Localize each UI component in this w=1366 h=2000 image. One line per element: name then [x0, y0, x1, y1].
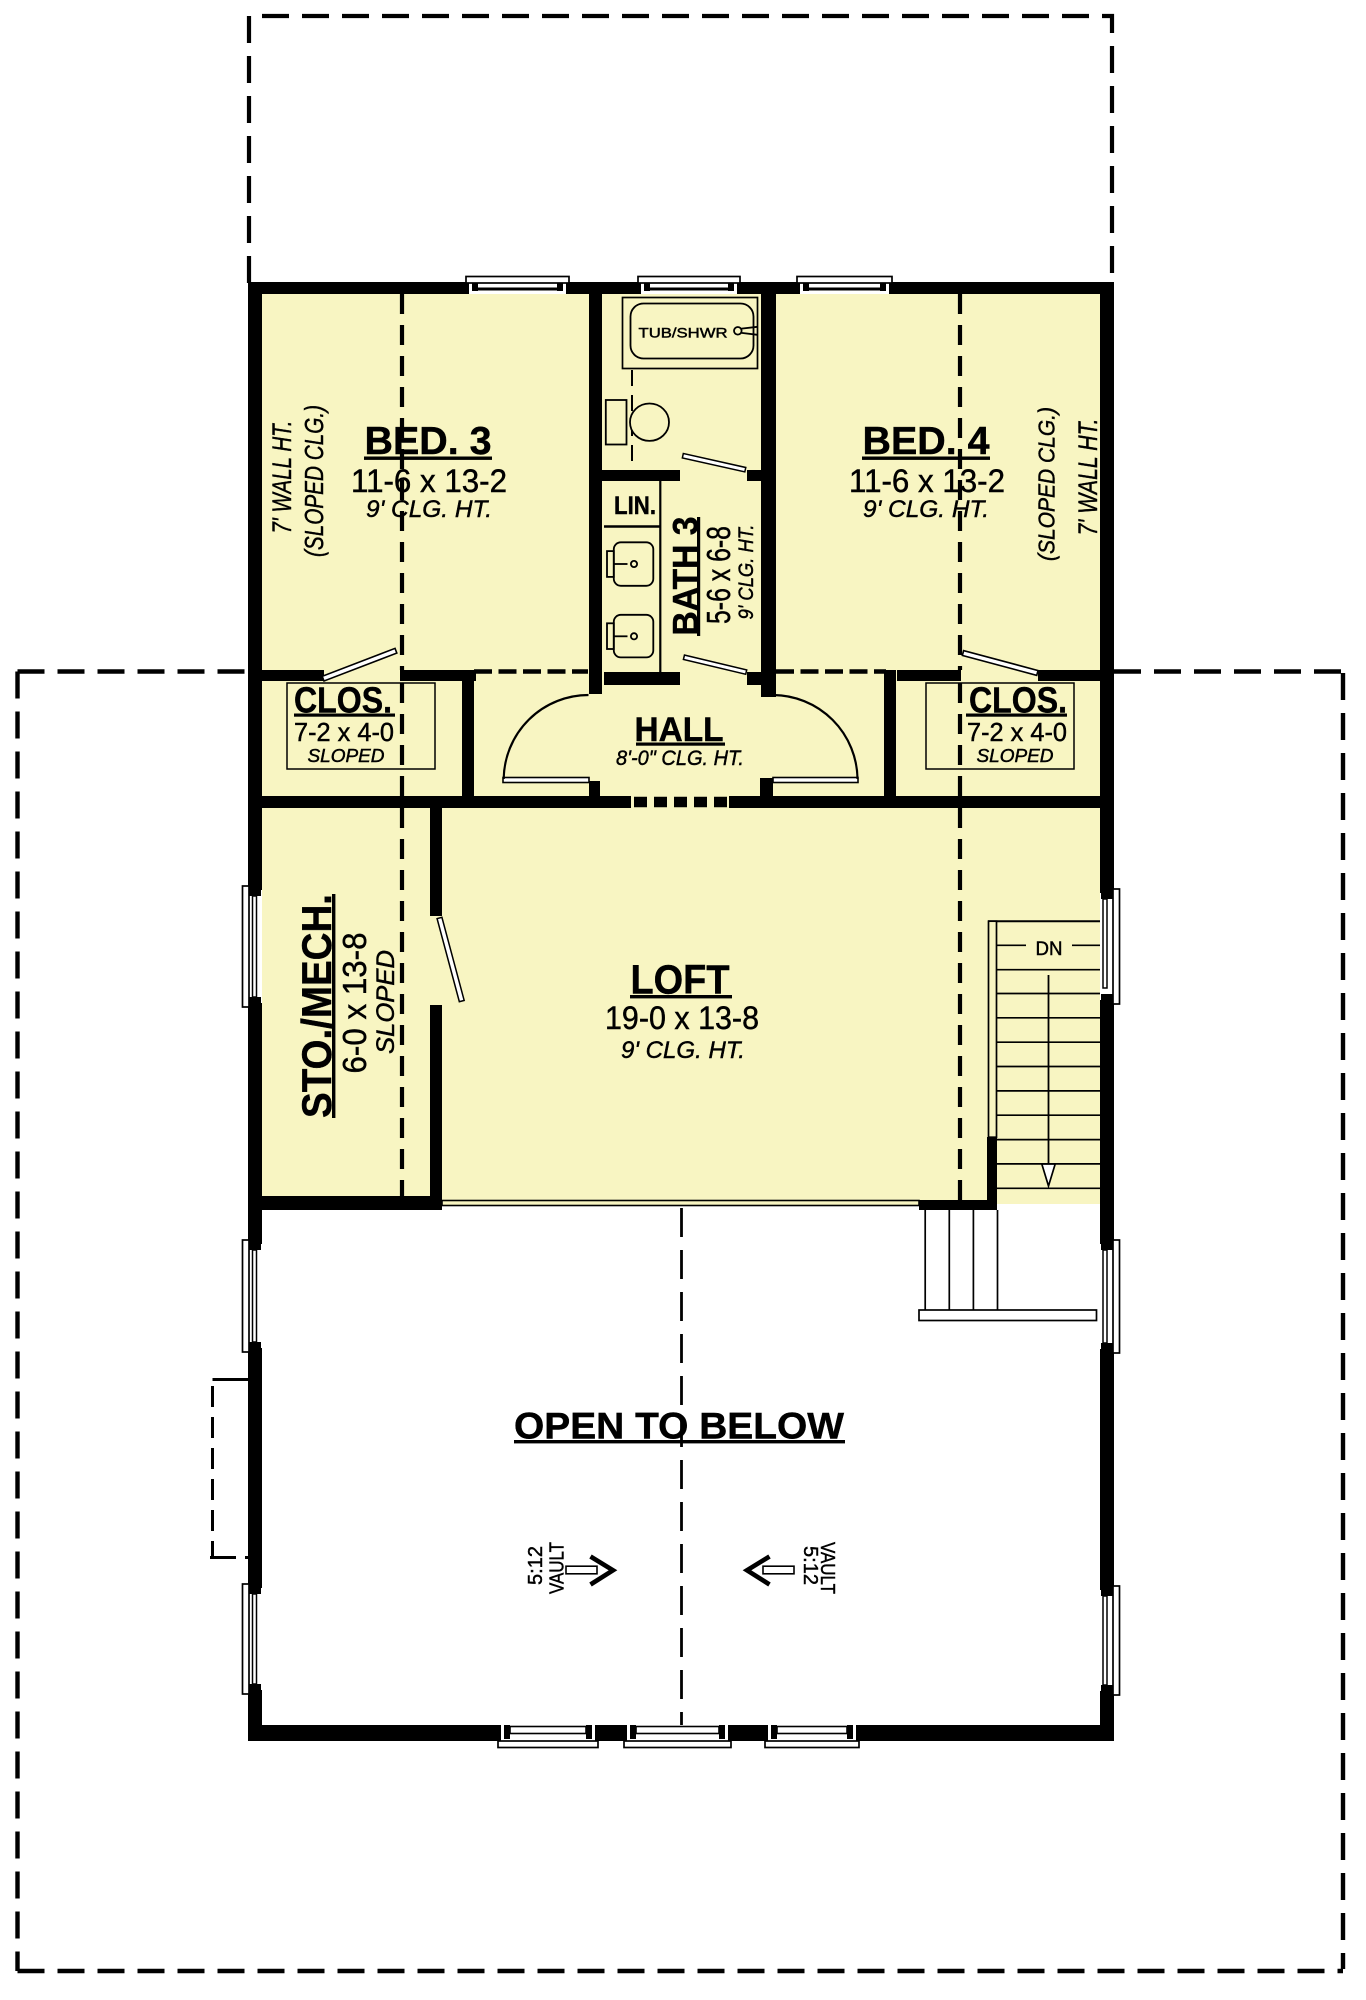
- svg-text:7-2 x 4-0: 7-2 x 4-0: [294, 717, 394, 747]
- svg-text:19-0 x 13-8: 19-0 x 13-8: [605, 1000, 759, 1036]
- svg-text:8'-0" CLG. HT.: 8'-0" CLG. HT.: [616, 747, 744, 770]
- svg-text:SLOPED: SLOPED: [372, 950, 400, 1054]
- svg-text:SLOPED: SLOPED: [308, 746, 385, 766]
- svg-text:7' WALL HT.: 7' WALL HT.: [267, 421, 297, 534]
- svg-text:(SLOPED CLG.): (SLOPED CLG.): [1034, 407, 1060, 561]
- svg-text:7-2 x 4-0: 7-2 x 4-0: [967, 717, 1067, 747]
- svg-text:7' WALL HT.: 7' WALL HT.: [1073, 419, 1103, 536]
- svg-text:11-6 x 13-2: 11-6 x 13-2: [351, 463, 507, 499]
- svg-text:6-0 x 13-8: 6-0 x 13-8: [336, 933, 373, 1074]
- svg-text:DN: DN: [1036, 939, 1063, 960]
- svg-text:TUB/SHWR: TUB/SHWR: [639, 325, 728, 341]
- svg-text:9' CLG. HT.: 9' CLG. HT.: [366, 496, 492, 523]
- svg-text:LIN.: LIN.: [614, 492, 656, 520]
- svg-text:5:12: 5:12: [525, 1546, 547, 1585]
- svg-text:9' CLG. HT.: 9' CLG. HT.: [621, 1037, 745, 1064]
- svg-text:(SLOPED CLG.): (SLOPED CLG.): [299, 405, 329, 557]
- svg-text:11-6 x 13-2: 11-6 x 13-2: [849, 463, 1005, 499]
- svg-text:SLOPED: SLOPED: [977, 746, 1054, 766]
- svg-text:9' CLG. HT.: 9' CLG. HT.: [863, 496, 989, 523]
- svg-text:VAULT: VAULT: [816, 1542, 838, 1594]
- svg-text:9' CLG. HT.: 9' CLG. HT.: [735, 525, 758, 620]
- svg-text:5-6 x 6-8: 5-6 x 6-8: [700, 526, 737, 624]
